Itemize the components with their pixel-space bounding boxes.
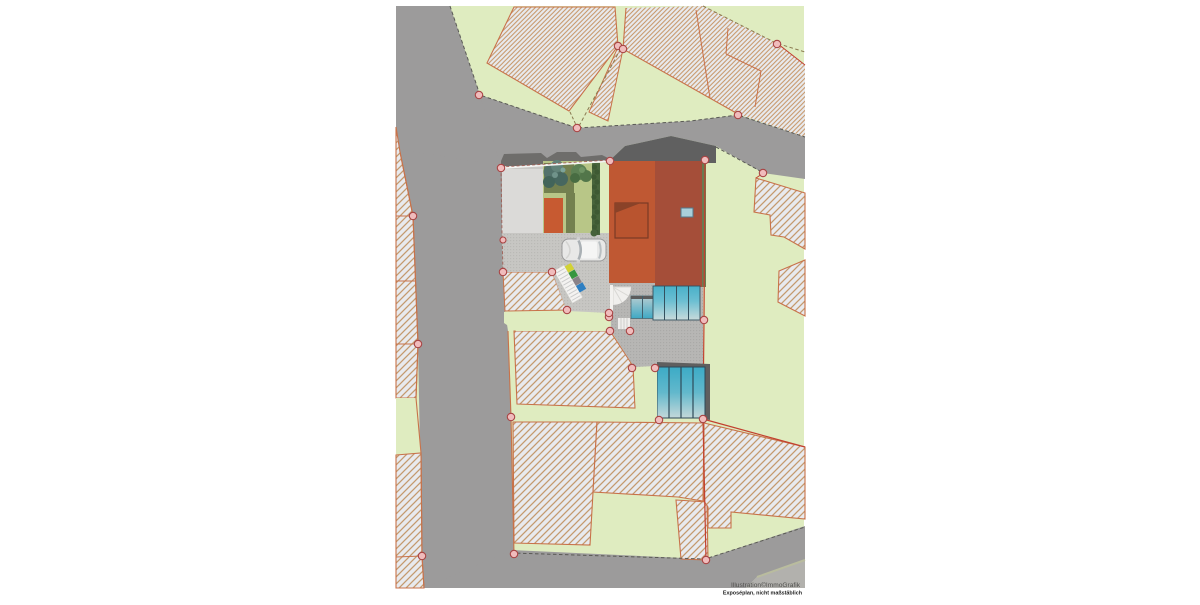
svg-text:Exposéplan, nicht maßstäblich: Exposéplan, nicht maßstäblich <box>723 591 802 597</box>
svg-text:Illustration©ImmoGrafik: Illustration©ImmoGrafik <box>731 581 801 589</box>
